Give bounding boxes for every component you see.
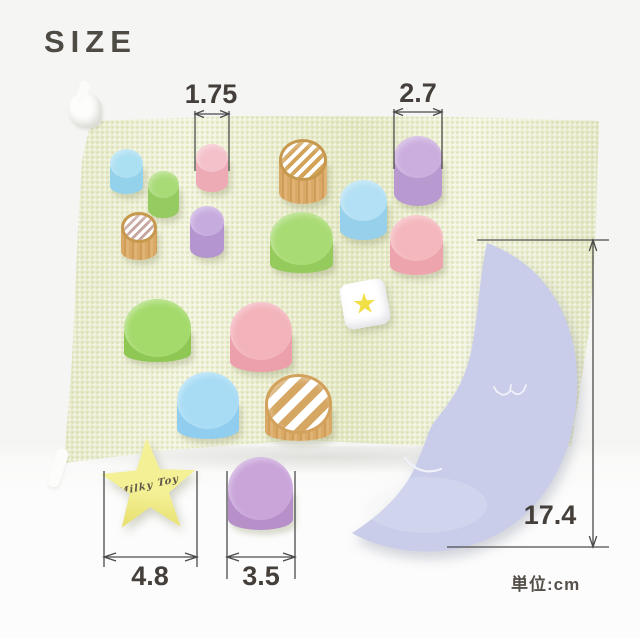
dim-label-small-cylinder: 1.75 [178,79,244,110]
cylinder-green-large [124,299,191,362]
dim-label-large-cylinder: 2.7 [390,78,446,109]
unit-label: 単位:cm [511,570,580,595]
cylinder-purple-small [190,206,224,258]
cylinder-pink-small [196,144,228,192]
cylinder-blue-large [177,372,239,439]
cylinder-blue-medium [340,180,387,240]
star-shape: Milky Toy [98,436,201,537]
cylinder-pink-medium [390,215,443,275]
cylinder-purple-large [394,136,442,206]
cylinder-green-medium [270,212,333,273]
dim-label-star-width: 4.8 [120,561,180,592]
cylinder-wood-striped-small [121,212,157,260]
cylinder-green-small [148,171,179,218]
dim-label-moon-height: 17.4 [518,500,582,531]
page-title: SIZE [44,24,137,60]
product-photo: ★Milky Toy SIZE 1.75 2.7 17.4 4.8 3.5 [0,0,640,638]
cylinder-blue-small [110,149,143,194]
cylinder-wood-striped-large [265,374,332,441]
dice-star-block: ★ [338,277,391,330]
cylinder-purple-flat [228,457,293,530]
star-block: Milky Toy [100,438,198,534]
cylinder-pink-large [230,302,292,372]
star-icon: ★ [351,289,378,319]
drawstring-knot [69,93,102,128]
star-signature: Milky Toy [117,472,185,498]
cylinder-wood-striped-top [279,139,327,204]
dim-label-flat-cylinder: 3.5 [231,561,291,592]
